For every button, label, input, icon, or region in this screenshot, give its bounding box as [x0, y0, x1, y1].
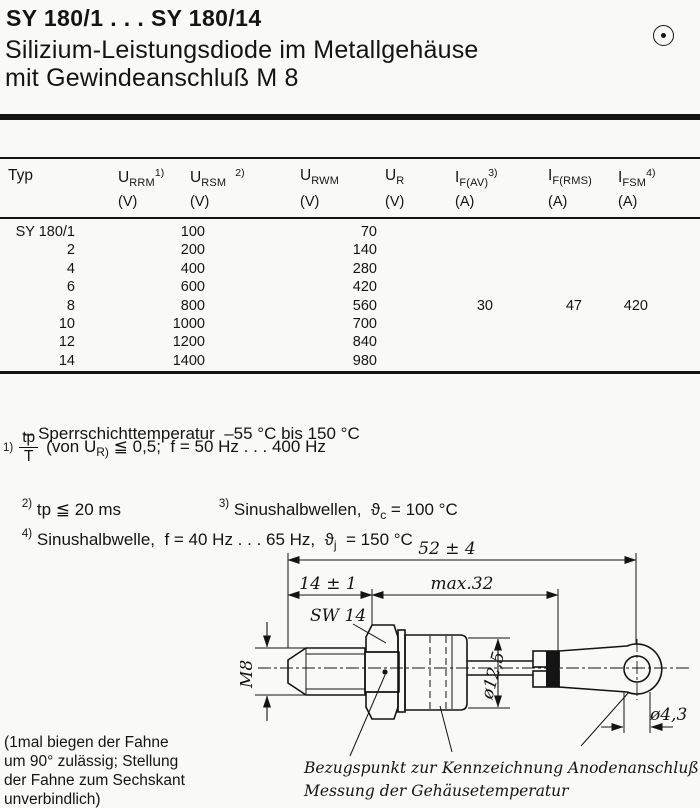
col-unit: (A): [618, 194, 637, 210]
caption-anode: Anodenanschluß: [566, 759, 699, 777]
caption-ref-point-line1: Bezugspunkt zur: [303, 759, 438, 777]
col-header: URSM2): [190, 167, 245, 189]
table-cell: 1400: [173, 353, 205, 369]
table-cell: 980: [353, 353, 377, 369]
col-header: URWM: [300, 167, 339, 187]
table-cell: 12: [59, 334, 75, 350]
col-unit: (V): [190, 194, 209, 210]
col-header: IF(AV)3): [455, 167, 498, 189]
col-unit: (V): [385, 194, 404, 210]
table-cell: 560: [353, 298, 377, 314]
dim-stud-and-body: 14 ± 1 max.32: [288, 574, 558, 686]
col-unit: (A): [548, 194, 567, 210]
table-cell: 1200: [173, 334, 205, 350]
table-cell: 140: [353, 242, 377, 258]
col-header: URRM1): [118, 167, 164, 189]
footnote-1-text: (von UR) ≦ 0,5; f = 50 Hz . . . 400 Hz: [46, 437, 326, 459]
table-cell: 70: [361, 224, 377, 240]
table-cell: 4: [67, 261, 75, 277]
table-cell: 6: [67, 279, 75, 295]
table-cell: 600: [181, 279, 205, 295]
footnote-4-marker: 4): [22, 528, 32, 540]
table-cell: 10: [59, 316, 75, 332]
dim-hole-diameter: ø4,3: [601, 692, 687, 733]
dim-hole-dia-text: ø4,3: [649, 705, 687, 725]
anode-flag: [559, 639, 662, 700]
dim-stud-text: 14 ± 1: [299, 574, 357, 594]
table-cell: 420: [353, 279, 377, 295]
page-title: SY 180/1 . . . SY 180/14: [6, 5, 262, 32]
leader-ref-point: [350, 675, 385, 756]
dim-thread-text: M8: [240, 660, 257, 689]
package-outline-drawing: 52 ± 4 14 ± 1 max.32 SW 14: [240, 540, 700, 808]
hex-nut: [365, 625, 399, 719]
table-top-rule: [0, 157, 700, 159]
table-cell: 420: [624, 298, 648, 314]
dim-body-diameter: ø12,5: [468, 638, 510, 708]
fraction-tp-over-T: tpT: [19, 430, 38, 466]
caption-ref-point-line2: Messung der Gehäusetemperatur: [303, 782, 570, 800]
col-unit: (V): [300, 194, 319, 210]
dim-thread: M8: [240, 622, 306, 721]
table-cell: 100: [181, 224, 205, 240]
dim-body-dia-text: ø12,5: [477, 650, 509, 703]
col-header: Typ: [8, 167, 33, 185]
table-cell: 280: [353, 261, 377, 277]
col-header: IF(RMS): [548, 167, 592, 187]
table-cell: 1000: [173, 316, 205, 332]
circled-dot-center: [661, 33, 666, 38]
table-cell: 2: [67, 242, 75, 258]
circled-dot-icon: [653, 25, 674, 46]
footnote-1-marker: 1): [3, 442, 13, 454]
caption-marking: Kennzeichnung: [441, 759, 563, 777]
dim-overall-text: 52 ± 4: [418, 540, 476, 559]
dim-overall: 52 ± 4: [288, 540, 636, 648]
table-cell: SY 180/1: [16, 224, 75, 240]
cylindrical-body: [405, 635, 467, 710]
table-cell: 200: [181, 242, 205, 258]
col-header: UR: [385, 167, 404, 187]
table-cell: 30: [477, 298, 493, 314]
header-divider: [0, 114, 700, 120]
flag-bending-note: (1mal biegen der Fahne um 90° zulässig; …: [4, 733, 185, 808]
leader-marking: [440, 706, 452, 752]
table-cell: 14: [59, 353, 75, 369]
crimp-sleeve: [533, 651, 559, 687]
datasheet-page: SY 180/1 . . . SY 180/14 Silizium-Leistu…: [0, 0, 700, 808]
dim-wrench-text: SW 14: [310, 606, 366, 626]
page-subtitle-line1: Silizium-Leistungsdiode im Metallgehäuse: [5, 36, 479, 65]
table-bottom-rule: [0, 371, 700, 374]
table-cell: 8: [67, 298, 75, 314]
col-unit: (V): [118, 194, 137, 210]
table-cell: 700: [353, 316, 377, 332]
table-header-rule: [0, 217, 700, 219]
page-subtitle-line2: mit Gewindeanschluß M 8: [5, 64, 299, 93]
table-cell: 800: [181, 298, 205, 314]
col-header: IFSM4): [618, 167, 655, 189]
table-cell: 840: [353, 334, 377, 350]
dim-body-text: max.32: [431, 574, 494, 594]
leader-anode: [581, 692, 629, 746]
table-cell: 47: [566, 298, 582, 314]
table-cell: 400: [181, 261, 205, 277]
footnote-1: 1) tpT (von UR) ≦ 0,5; f = 50 Hz . . . 4…: [3, 430, 326, 466]
case-temp-reference-dot: [382, 669, 387, 674]
col-unit: (A): [455, 194, 474, 210]
threaded-stud: [288, 648, 365, 695]
